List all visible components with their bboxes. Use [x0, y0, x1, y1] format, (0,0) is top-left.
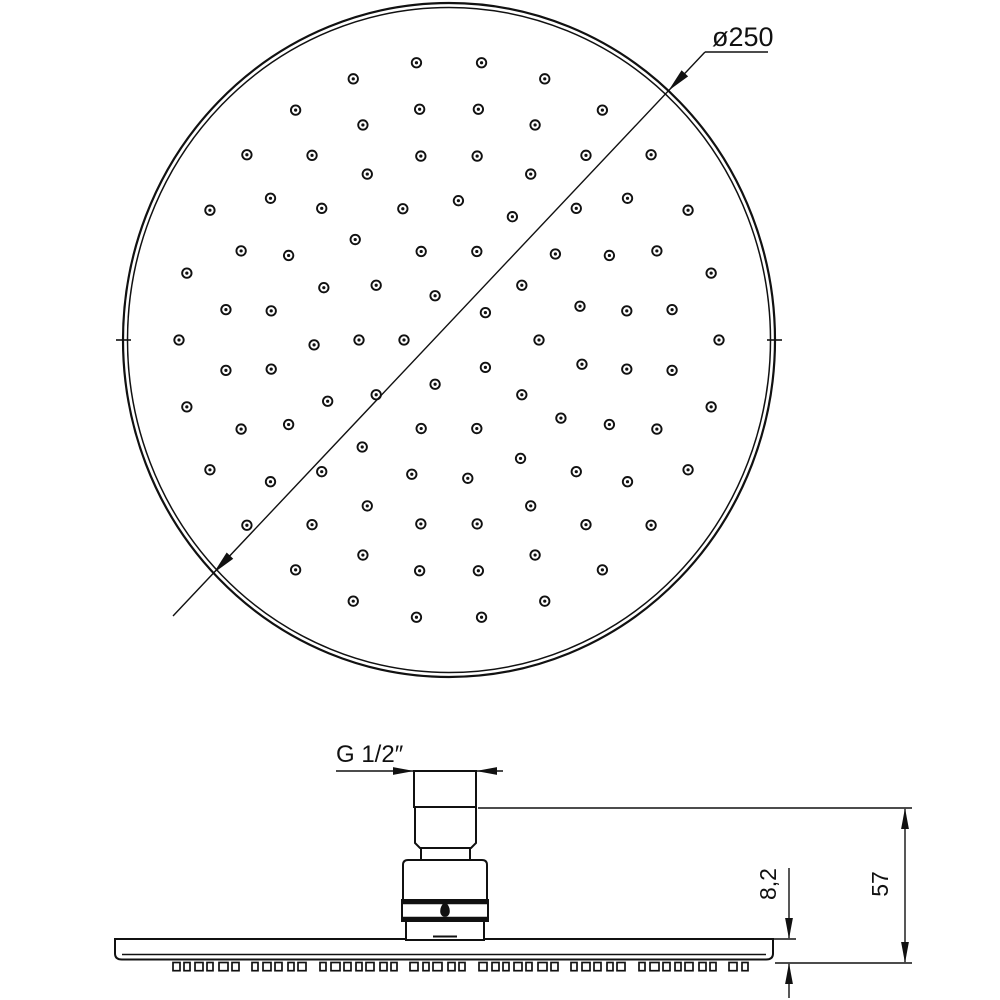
nozzle-center-dot [419, 522, 422, 525]
spray-tooth [607, 963, 613, 971]
spray-tooth [298, 963, 306, 971]
nozzle-center-dot [310, 154, 313, 157]
nozzle-center-dot [352, 600, 355, 603]
spray-tooth [423, 963, 429, 971]
nozzle-center-dot [529, 172, 532, 175]
nozzle-center-dot [466, 477, 469, 480]
nozzle-center-dot [529, 504, 532, 507]
thread-label: G 1/2″ [336, 741, 404, 768]
nozzle-center-dot [625, 309, 628, 312]
spray-tooth [288, 963, 294, 971]
spray-tooth [195, 963, 203, 971]
spray-tooth [275, 963, 282, 971]
spray-tooth [729, 963, 737, 971]
spray-tooth [663, 963, 670, 971]
spray-tooth [571, 963, 577, 971]
nozzle-center-dot [269, 480, 272, 483]
spray-tooth [331, 963, 340, 971]
spray-tooth [356, 963, 362, 971]
nut-body [403, 860, 487, 900]
nozzle-center-dot [185, 405, 188, 408]
thread-pipe [414, 771, 476, 807]
upper-cylinder [415, 807, 476, 848]
nozzle-center-dot [240, 427, 243, 430]
nozzle-center-dot [520, 284, 523, 287]
nozzle-center-dot [320, 470, 323, 473]
nozzle-center-dot [575, 207, 578, 210]
nozzle-center-dot [575, 470, 578, 473]
spray-tooth [582, 963, 590, 971]
nozzle-center-dot [655, 249, 658, 252]
nozzle-center-dot [310, 523, 313, 526]
nozzle-center-dot [534, 553, 537, 556]
nozzle-center-dot [710, 272, 713, 275]
nozzle-center-dot [415, 61, 418, 64]
nozzle-center-dot [484, 366, 487, 369]
spray-tooth [479, 963, 487, 971]
spray-tooth [207, 963, 213, 971]
nozzle-center-dot [584, 154, 587, 157]
nozzle-center-dot [649, 524, 652, 527]
nozzle-center-dot [480, 616, 483, 619]
nozzle-center-dot [269, 197, 272, 200]
spray-tooth [526, 963, 532, 971]
nozzle-center-dot [543, 600, 546, 603]
nozzle-center-dot [294, 568, 297, 571]
nozzle-center-dot [357, 338, 360, 341]
nozzle-center-dot [415, 616, 418, 619]
spray-tooth [344, 963, 351, 971]
nozzle-center-dot [401, 207, 404, 210]
nozzle-center-dot [477, 569, 480, 572]
spray-tooth [380, 963, 387, 971]
plate [115, 939, 773, 960]
nozzle-center-dot [312, 343, 315, 346]
spray-tooth [459, 963, 465, 971]
nozzle-center-dot [224, 308, 227, 311]
nozzle-center-dot [484, 311, 487, 314]
spray-tooth [594, 963, 601, 971]
nozzle-center-dot [208, 209, 211, 212]
spray-tooth [617, 963, 625, 971]
neck [421, 848, 470, 860]
nozzle-center-dot [559, 416, 562, 419]
spray-tooth [699, 963, 706, 971]
nozzle-center-dot [208, 468, 211, 471]
nozzle-center-dot [420, 250, 423, 253]
nozzle-center-dot [608, 254, 611, 257]
nozzle-center-dot [419, 154, 422, 157]
nozzle-center-dot [245, 153, 248, 156]
nozzle-center-dot [433, 383, 436, 386]
nozzle-center-dot [375, 393, 378, 396]
spray-tooth [514, 963, 522, 971]
spray-tooth [448, 963, 455, 971]
spray-tooth [551, 963, 558, 971]
nozzle-center-dot [294, 109, 297, 112]
nozzle-center-dot [224, 369, 227, 372]
spray-tooth [263, 963, 271, 971]
nozzle-center-dot [601, 109, 604, 112]
spray-tooth [685, 963, 693, 971]
nozzle-center-dot [354, 238, 357, 241]
nozzle-center-dot [686, 209, 689, 212]
nozzle-center-dot [177, 338, 180, 341]
spray-tooth [184, 963, 190, 971]
spray-tooth [252, 963, 258, 971]
nozzle-center-dot [537, 338, 540, 341]
nozzle-center-dot [578, 305, 581, 308]
spray-tooth [675, 963, 681, 971]
spray-tooth [232, 963, 239, 971]
nozzle-center-dot [361, 445, 364, 448]
nozzle-center-dot [480, 61, 483, 64]
nozzle-center-dot [320, 207, 323, 210]
nozzle-center-dot [418, 569, 421, 572]
nozzle-center-dot [410, 473, 413, 476]
nozzle-center-dot [625, 368, 628, 371]
nozzle-center-dot [717, 338, 720, 341]
nozzle-center-dot [519, 457, 522, 460]
nozzle-center-dot [270, 309, 273, 312]
nozzle-center-dot [270, 368, 273, 371]
spray-tooth [538, 963, 547, 971]
nozzle-center-dot [534, 123, 537, 126]
nozzle-center-dot [475, 250, 478, 253]
nozzle-center-dot [477, 108, 480, 111]
nozzle-center-dot [361, 553, 364, 556]
nozzle-center-dot [543, 77, 546, 80]
plate-thickness-label: 8,2 [755, 868, 781, 900]
nozzle-center-dot [580, 363, 583, 366]
spray-tooth [639, 963, 645, 971]
diameter-label: ø250 [712, 22, 774, 52]
nozzle-center-dot [366, 504, 369, 507]
spray-tooth [433, 963, 442, 971]
nozzle-center-dot [649, 153, 652, 156]
spray-tooth [710, 963, 716, 971]
spray-tooth [503, 963, 509, 971]
nozzle-center-dot [686, 468, 689, 471]
nozzle-center-dot [601, 568, 604, 571]
nozzle-center-dot [352, 77, 355, 80]
shower-head-technical-drawing: ø250G 1/2″8,257 [0, 0, 1000, 1000]
nozzle-center-dot [626, 480, 629, 483]
nozzle-center-dot [418, 108, 421, 111]
nozzle-center-dot [554, 252, 557, 255]
nozzle-center-dot [584, 523, 587, 526]
nozzle-center-dot [287, 423, 290, 426]
nozzle-center-dot [361, 123, 364, 126]
nozzle-center-dot [287, 254, 290, 257]
nozzle-center-dot [710, 405, 713, 408]
technical-drawing-page: ø250G 1/2″8,257 [0, 0, 1000, 1000]
nozzle-center-dot [475, 427, 478, 430]
spray-tooth [173, 963, 180, 971]
nozzle-center-dot [626, 197, 629, 200]
nozzle-center-dot [326, 400, 329, 403]
nozzle-center-dot [608, 423, 611, 426]
nozzle-center-dot [511, 215, 514, 218]
drawing-background [0, 0, 1000, 1000]
nozzle-center-dot [476, 154, 479, 157]
spray-tooth [366, 963, 374, 971]
nozzle-center-dot [655, 427, 658, 430]
nozzle-center-dot [520, 393, 523, 396]
nozzle-center-dot [185, 272, 188, 275]
spray-tooth [410, 963, 418, 971]
spray-tooth [650, 963, 659, 971]
nozzle-center-dot [670, 308, 673, 311]
total-height-label: 57 [867, 871, 893, 897]
nozzle-center-dot [457, 199, 460, 202]
spray-tooth [742, 963, 748, 971]
spray-tooth [391, 963, 397, 971]
nozzle-center-dot [245, 524, 248, 527]
nozzle-center-dot [322, 286, 325, 289]
nozzle-center-dot [402, 338, 405, 341]
nozzle-center-dot [476, 522, 479, 525]
spray-tooth [219, 963, 228, 971]
nozzle-center-dot [433, 294, 436, 297]
nozzle-center-dot [670, 369, 673, 372]
nozzle-center-dot [366, 172, 369, 175]
nozzle-center-dot [240, 249, 243, 252]
nozzle-center-dot [375, 284, 378, 287]
spray-tooth [320, 963, 326, 971]
nozzle-center-dot [420, 427, 423, 430]
spray-tooth [492, 963, 499, 971]
